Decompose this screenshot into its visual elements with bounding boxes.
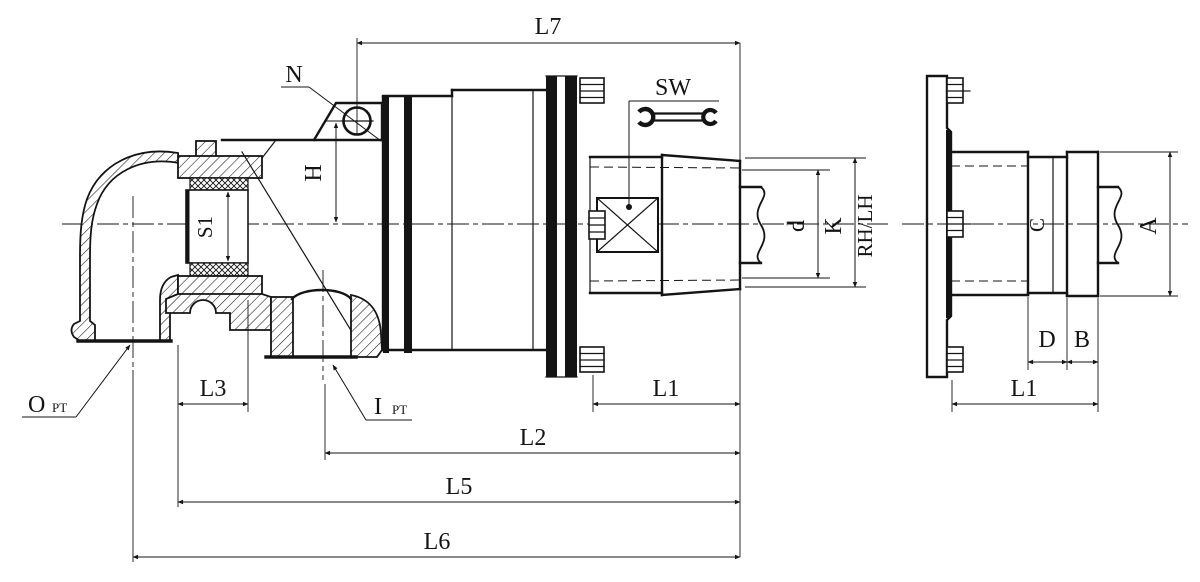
casting-bottom-wall (166, 294, 271, 330)
knurl-band-top (190, 178, 248, 190)
dim-label-a: A (1136, 217, 1162, 235)
dim-label-side-l1: L1 (1011, 376, 1038, 402)
rotor-nipple (589, 155, 740, 295)
flange-plate-a (546, 76, 557, 377)
eyelet-label: N (285, 62, 302, 88)
dim-label-k: K (821, 217, 847, 235)
wrench-icon (639, 109, 716, 125)
side-shaft-stub (1098, 187, 1121, 263)
flange-plate-b (565, 76, 577, 377)
side-bolt-middle (947, 211, 971, 237)
dim-label-l6: L6 (424, 529, 451, 555)
inlet-port-sub: PT (392, 402, 407, 417)
taper-bottom (662, 289, 740, 295)
taper-top (662, 155, 740, 161)
dim-label-l3: L3 (200, 376, 227, 402)
inlet-port-letter: I (374, 394, 382, 420)
thread-pitch-line-bottom (590, 280, 740, 281)
outlet-port-label: O PT (22, 345, 130, 418)
dim-label-side-d: D (1038, 327, 1055, 353)
flange-bolt-bottom (580, 347, 604, 372)
wrench-size-label: SW (655, 75, 691, 101)
side-bolt-bottom (947, 347, 963, 372)
housing-body (383, 90, 546, 353)
dim-label-d: d (784, 220, 810, 232)
dim-label-s1: S1 (193, 216, 217, 238)
rotary-joint-drawing: L7 N H S1 SW d K (0, 0, 1200, 582)
dim-label-l5: L5 (446, 474, 473, 500)
dim-label-c: C (1025, 218, 1049, 232)
dim-label-side-b: B (1074, 327, 1090, 353)
side-shaft-break-line (1115, 187, 1122, 263)
side-bolt-top (947, 78, 970, 103)
flange-bolt-top (580, 78, 604, 103)
outlet-port-sub: PT (52, 400, 67, 415)
port-right-wall (351, 295, 382, 357)
inlet-port-label: I PT (333, 365, 412, 420)
port-dome (292, 290, 351, 299)
leader-o-pt (76, 345, 130, 417)
main-view: L7 N H S1 SW d K (22, 14, 888, 562)
technical-drawing-page: L7 N H S1 SW d K (0, 0, 1200, 582)
leader-i-pt (333, 365, 366, 420)
dim-label-l7: L7 (535, 14, 562, 40)
elbow-pipe (72, 152, 180, 341)
thread-pitch-line-top (590, 167, 740, 168)
outlet-port-letter: O (28, 392, 45, 418)
dim-label-l1: L1 (653, 376, 680, 402)
thread-stub (589, 211, 605, 239)
inlet-port (266, 290, 382, 357)
side-flange-plate (927, 76, 971, 377)
shaft-break-line (758, 187, 765, 263)
port-left-wall (271, 297, 293, 357)
nut-top-tab (196, 141, 216, 157)
dim-label-h: H (301, 164, 327, 181)
knurl-band-bottom (190, 263, 248, 276)
gland-ring-section (404, 95, 412, 353)
rotation-direction-label: RH/LH (853, 195, 877, 258)
side-view: C A D B L1 (902, 76, 1188, 412)
seal-ring-section (383, 97, 389, 353)
leader-n (309, 87, 381, 141)
shaft-stub (740, 187, 764, 263)
dimensions-side: C A D B L1 (952, 152, 1178, 412)
dim-label-l2: L2 (520, 425, 547, 451)
